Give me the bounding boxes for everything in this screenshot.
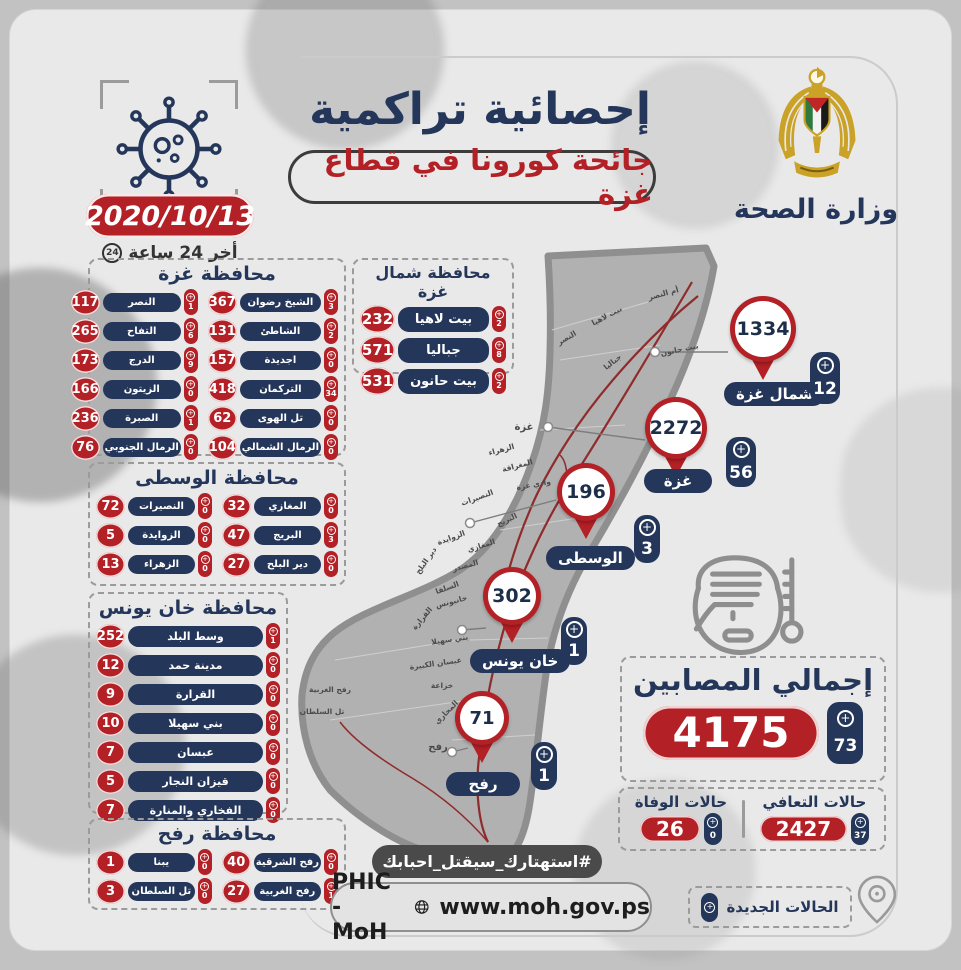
- deaths-block: حالات الوفاة 26 +0: [635, 793, 727, 845]
- area-name: بيت حانون: [398, 369, 489, 394]
- total-count: 27: [222, 879, 251, 904]
- stat-row: 27رفح الغربية+1: [222, 878, 338, 904]
- plus-icon: +: [200, 853, 209, 862]
- area-name: اجديدة: [240, 351, 321, 370]
- new-cases-badge: +3: [324, 522, 338, 548]
- region-label-khan-younis: خان يونس: [470, 649, 570, 673]
- pin-total-count: 2272: [650, 402, 702, 454]
- new-cases-badge: +0: [198, 493, 212, 519]
- map-place-label: الزهراء: [487, 442, 515, 458]
- total-count: 27: [222, 552, 251, 577]
- new-cases-count: 0: [270, 782, 276, 790]
- new-cases-badge: +0: [324, 493, 338, 519]
- stat-row: 27دير البلح+0: [222, 551, 338, 577]
- area-name: تل الهوى: [240, 409, 321, 428]
- stat-row: 232بيت لاهيا+2: [360, 305, 506, 333]
- stat-row: 47البريج+3: [222, 522, 338, 548]
- new-cases-badge-wusta: +3: [634, 515, 660, 563]
- new-cases-badge: +0: [266, 710, 280, 736]
- stat-row: 367الشيخ رضوان+3: [208, 289, 338, 315]
- area-name: تل السلطان: [128, 882, 195, 901]
- section-title: محافظة الوسطى: [96, 467, 338, 489]
- total-count: 10: [96, 711, 125, 736]
- new-cases-count: 0: [188, 448, 194, 456]
- area-name: الزيتون: [103, 380, 181, 399]
- pin-total-count: 1334: [735, 301, 791, 357]
- total-infected-box: إجمالي المصابين 4175 + 73: [620, 656, 886, 782]
- plus-icon: +: [733, 441, 750, 458]
- new-cases-count: 2: [496, 382, 502, 390]
- area-name: دير البلح: [254, 555, 321, 574]
- new-cases-badge: +0: [184, 434, 198, 460]
- new-cases-badge: +34: [324, 376, 338, 402]
- new-cases-badge: +0: [324, 347, 338, 373]
- new-cases-count: 0: [328, 419, 334, 427]
- total-count: 157: [208, 348, 237, 373]
- total-count: 3: [96, 879, 125, 904]
- total-count: 571: [360, 336, 395, 364]
- recovered-value: 2427: [760, 816, 848, 842]
- area-name: الرمال الشمالي: [240, 438, 321, 457]
- plus-icon: +: [186, 409, 195, 418]
- recovered-new-badge: +37: [851, 813, 869, 845]
- new-cases-badge: +0: [324, 434, 338, 460]
- plus-icon: +: [327, 438, 336, 447]
- area-name: رفح الشرقية: [254, 853, 321, 872]
- stat-row: 72النصيرات+0: [96, 493, 212, 519]
- new-cases-badge: +1: [184, 405, 198, 431]
- stat-row: 32المغازي+0: [222, 493, 338, 519]
- plus-icon: +: [269, 685, 278, 694]
- new-cases-count: 0: [328, 507, 334, 515]
- stat-row: 40رفح الشرقية+0: [222, 849, 338, 875]
- new-cases-count: 3: [328, 303, 334, 311]
- new-cases-count: 2: [496, 320, 502, 328]
- stat-row: 531بيت حانون+2: [360, 367, 506, 395]
- total-new-cases-count: 73: [834, 736, 858, 756]
- map-place-label: رفح الغربية: [309, 685, 351, 694]
- stats-grid: 40رفح الشرقية+01يبنا+027رفح الغربية+13تل…: [96, 849, 338, 904]
- new-cases-badge: +2: [324, 318, 338, 344]
- stat-row: 104الرمال الشمالي+0: [208, 434, 338, 460]
- section-wusta-governorate: محافظة الوسطى 32المغازي+072النصيرات+047ا…: [88, 462, 346, 586]
- section-north-gaza-governorate: محافظة شمال غزة 232بيت لاهيا+2571جباليا+…: [352, 258, 514, 374]
- map-pin-khan-younis: 302: [483, 567, 541, 643]
- pin-total-count: 71: [460, 696, 504, 740]
- new-cases-count: 56: [729, 463, 753, 483]
- plus-icon: +: [327, 555, 336, 564]
- stat-row: 12مدينة حمد+0: [96, 652, 280, 678]
- new-cases-count: 1: [270, 637, 276, 645]
- new-cases-count: 3: [641, 539, 653, 559]
- new-cases-count: 6: [188, 332, 194, 340]
- plus-icon: +: [269, 627, 278, 636]
- area-name: البريج: [254, 526, 321, 545]
- stat-row: 5قيزان النجار+0: [96, 768, 280, 794]
- map-place-label: تل السلطان: [300, 707, 345, 716]
- total-count: 5: [96, 523, 125, 548]
- stat-row: 1يبنا+0: [96, 849, 212, 875]
- plus-icon: +: [269, 801, 278, 810]
- total-count: 367: [208, 290, 237, 315]
- section-title: محافظة شمال غزة: [360, 263, 506, 301]
- stats-grid: 367الشيخ رضوان+3117النصر+1131الشاطئ+2265…: [96, 289, 338, 460]
- new-cases-badge-rafah: +1: [531, 742, 557, 790]
- total-count: 32: [222, 494, 251, 519]
- area-name: جباليا: [398, 338, 489, 363]
- report-date-badge: 2020/10/13: [86, 194, 254, 238]
- region-label-gaza: غزة: [644, 469, 712, 493]
- total-count: 1: [96, 850, 125, 875]
- new-cases-legend: الحالات الجديدة +: [688, 886, 852, 928]
- map-pin-north-gaza: 1334: [730, 296, 796, 380]
- new-cases-badge: +0: [198, 551, 212, 577]
- plus-icon: +: [536, 746, 553, 763]
- recovered-new-count: 37: [854, 831, 867, 841]
- total-count: 265: [71, 319, 100, 344]
- area-name: الشاطئ: [240, 322, 321, 341]
- new-cases-badge-khan-younis: +1: [561, 617, 587, 665]
- new-cases-badge: +3: [324, 289, 338, 315]
- deaths-new-badge: +0: [704, 813, 722, 845]
- total-count: 117: [71, 290, 100, 315]
- section-title: محافظة غزة: [96, 263, 338, 285]
- plus-icon: +: [200, 882, 209, 891]
- new-cases-badge: +2: [492, 368, 506, 394]
- new-cases-count: 0: [328, 361, 334, 369]
- area-name: النصر: [103, 293, 181, 312]
- plus-icon: +: [327, 293, 336, 302]
- total-count: 40: [222, 850, 251, 875]
- recovered-deaths-box: حالات الوفاة 26 +0 حالات التعافي 2427 +3…: [618, 787, 886, 851]
- plus-icon: +: [707, 817, 718, 828]
- stat-row: 236الصبرة+1: [71, 405, 198, 431]
- poster-subtitle: جائحة كورونا في قطاع غزة: [288, 150, 656, 204]
- plus-icon: +: [186, 293, 195, 302]
- plus-icon: +: [186, 351, 195, 360]
- total-new-cases-badge: + 73: [827, 702, 863, 764]
- new-cases-count: 1: [568, 641, 580, 661]
- area-name: الشيخ رضوان: [240, 293, 321, 312]
- total-count: 76: [71, 435, 100, 460]
- stat-row: 173الدرج+9: [71, 347, 198, 373]
- new-cases-badge: +0: [324, 405, 338, 431]
- plus-icon: +: [327, 497, 336, 506]
- new-cases-badge: +0: [184, 376, 198, 402]
- new-cases-badge: +0: [266, 768, 280, 794]
- area-name: بيت لاهيا: [398, 307, 489, 332]
- awareness-hashtag: #استهتارك_سيقتل_احبابك: [372, 845, 602, 878]
- deaths-new-count: 0: [710, 831, 716, 841]
- section-khan-younis-governorate: محافظة خان يونس 252وسط البلد+112مدينة حم…: [88, 592, 288, 814]
- area-name: الدرج: [103, 351, 181, 370]
- fever-check-icon: [672, 543, 804, 661]
- new-cases-count: 1: [538, 766, 550, 786]
- recovered-label: حالات التعافي: [762, 793, 866, 811]
- stat-row: 265التفاح+6: [71, 318, 198, 344]
- plus-icon: +: [201, 555, 210, 564]
- new-cases-badge: +0: [198, 522, 212, 548]
- stat-row: 9القرارة+0: [96, 681, 280, 707]
- new-cases-count: 0: [202, 565, 208, 573]
- website-bar: PHIC - MoH www.moh.gov.ps: [330, 882, 652, 932]
- stat-row: 7عبسان+0: [96, 739, 280, 765]
- total-count: 236: [71, 406, 100, 431]
- new-cases-count: 8: [496, 351, 502, 359]
- new-cases-badge: +0: [266, 739, 280, 765]
- map-place-label: الزوايدة: [436, 528, 466, 546]
- plus-icon: +: [327, 853, 336, 862]
- website-url: www.moh.gov.ps: [439, 895, 650, 920]
- plus-icon: +: [269, 772, 278, 781]
- total-count: 62: [208, 406, 237, 431]
- plus-icon: +: [495, 310, 504, 319]
- globe-icon: [414, 892, 430, 922]
- area-name: القرارة: [128, 684, 263, 705]
- area-name: رفح الغربية: [254, 882, 321, 901]
- plus-icon: +: [837, 710, 854, 727]
- new-cases-badge: +9: [184, 347, 198, 373]
- area-name: الرمال الجنوبي: [103, 438, 181, 457]
- plus-icon: +: [186, 322, 195, 331]
- stat-row: 13الزهراء+0: [96, 551, 212, 577]
- stats-grid: 32المغازي+072النصيرات+047البريج+35الزواي…: [96, 493, 338, 577]
- map-place-label: رفح: [428, 742, 448, 753]
- new-cases-count: 2: [328, 332, 334, 340]
- total-infected-value: 4175: [643, 706, 820, 760]
- plus-icon: +: [639, 519, 656, 536]
- stat-row: 252وسط البلد+1: [96, 623, 280, 649]
- new-cases-badge-north-gaza: +12: [810, 352, 840, 404]
- new-cases-count: 0: [202, 536, 208, 544]
- region-label-wusta: الوسطى: [546, 546, 635, 570]
- total-count: 9: [96, 682, 125, 707]
- divider: [742, 800, 745, 838]
- new-cases-count: 0: [328, 565, 334, 573]
- stat-row: 117النصر+1: [71, 289, 198, 315]
- new-cases-count: 0: [202, 507, 208, 515]
- new-cases-count: 9: [188, 361, 194, 369]
- area-name: النصيرات: [128, 497, 195, 516]
- stats-grid: 232بيت لاهيا+2571جباليا+8531بيت حانون+2: [360, 305, 506, 395]
- deaths-label: حالات الوفاة: [635, 793, 727, 811]
- plus-icon: +: [269, 656, 278, 665]
- section-title: محافظة رفح: [96, 823, 338, 845]
- new-cases-count: 0: [270, 724, 276, 732]
- plus-icon: +: [186, 438, 195, 447]
- map-place-label: دير البلح: [413, 545, 438, 576]
- plus-icon: +: [269, 743, 278, 752]
- new-cases-badge: +1: [184, 289, 198, 315]
- new-cases-count: 0: [270, 666, 276, 674]
- new-cases-count: 1: [188, 303, 194, 311]
- stat-row: 131الشاطئ+2: [208, 318, 338, 344]
- area-name: مدينة حمد: [128, 655, 263, 676]
- new-cases-count: 0: [270, 753, 276, 761]
- total-count: 72: [96, 494, 125, 519]
- pin-total-count: 196: [562, 468, 610, 516]
- total-count: 47: [222, 523, 251, 548]
- new-cases-count: 1: [188, 419, 194, 427]
- total-count: 531: [360, 367, 395, 395]
- plus-icon: +: [704, 902, 715, 913]
- recovered-block: حالات التعافي 2427 +37: [760, 793, 870, 845]
- section-gaza-governorate: محافظة غزة 367الشيخ رضوان+3117النصر+1131…: [88, 258, 346, 456]
- stat-row: 10بني سهيلا+0: [96, 710, 280, 736]
- plus-icon: +: [495, 372, 504, 381]
- pin-total-count: 302: [488, 572, 536, 620]
- stat-row: 76الرمال الجنوبي+0: [71, 434, 198, 460]
- area-name: يبنا: [128, 853, 195, 872]
- total-count: 173: [71, 348, 100, 373]
- location-pin-icon: [856, 874, 898, 926]
- plus-icon: +: [855, 817, 866, 828]
- stats-grid: 252وسط البلد+112مدينة حمد+09القرارة+010ب…: [96, 623, 280, 823]
- total-count: 13: [96, 552, 125, 577]
- stat-row: 571جباليا+8: [360, 336, 506, 364]
- area-name: عبسان: [128, 742, 263, 763]
- new-cases-badge: +0: [266, 652, 280, 678]
- poster-title: إحصائية تراكمية: [290, 84, 670, 135]
- plus-icon: +: [327, 322, 336, 331]
- new-cases-badge: +2: [492, 306, 506, 332]
- plus-icon: +: [327, 526, 336, 535]
- stat-row: 157اجديدة+0: [208, 347, 338, 373]
- area-name: التركمان: [240, 380, 321, 399]
- region-label-rafah: رفح: [446, 772, 520, 796]
- new-cases-count: 0: [328, 448, 334, 456]
- plus-icon: +: [327, 409, 336, 418]
- new-cases-badge: +0: [198, 849, 212, 875]
- stat-row: 418التركمان+34: [208, 376, 338, 402]
- legend-label: الحالات الجديدة: [726, 898, 838, 916]
- area-name: المغازي: [254, 497, 321, 516]
- total-count: 7: [96, 740, 125, 765]
- map-pin-rafah: 71: [455, 691, 509, 763]
- total-count: 12: [96, 653, 125, 678]
- new-cases-badge-gaza: +56: [726, 437, 756, 487]
- new-cases-badge: +0: [198, 878, 212, 904]
- plus-icon: +: [327, 351, 336, 360]
- total-count: 5: [96, 769, 125, 794]
- plus-icon: +: [566, 621, 583, 638]
- total-count: 232: [360, 305, 395, 333]
- deaths-value: 26: [640, 816, 700, 842]
- section-rafah-governorate: محافظة رفح 40رفح الشرقية+01يبنا+027رفح ا…: [88, 818, 346, 910]
- new-cases-count: 0: [188, 390, 194, 398]
- organization-label: PHIC - MoH: [332, 870, 404, 945]
- new-cases-count: 0: [202, 892, 208, 900]
- map-place-label: خزاعة: [431, 681, 453, 690]
- plus-icon: +: [269, 714, 278, 723]
- plus-icon: +: [201, 526, 210, 535]
- area-name: قيزان النجار: [128, 771, 263, 792]
- map-place-label: النصيرات: [460, 488, 495, 508]
- total-count: 418: [208, 377, 237, 402]
- stat-row: 166الزيتون+0: [71, 376, 198, 402]
- new-cases-count: 0: [270, 695, 276, 703]
- new-cases-badge-icon: +: [701, 893, 718, 922]
- new-cases-count: 0: [202, 863, 208, 871]
- new-cases-badge: +0: [266, 681, 280, 707]
- area-name: بني سهيلا: [128, 713, 263, 734]
- plus-icon: +: [186, 380, 195, 389]
- map-pin-wusta: 196: [557, 463, 615, 539]
- stat-row: 3تل السلطان+0: [96, 878, 212, 904]
- ministry-of-health-label: وزارة الصحة: [728, 194, 904, 225]
- new-cases-badge: +6: [184, 318, 198, 344]
- map-place-label: غزة: [515, 422, 534, 433]
- new-cases-badge: +1: [266, 623, 280, 649]
- new-cases-count: 12: [813, 379, 837, 399]
- area-name: وسط البلد: [128, 626, 263, 647]
- area-name: الزهراء: [128, 555, 195, 574]
- area-name: الزوايدة: [128, 526, 195, 545]
- stat-row: 62تل الهوى+0: [208, 405, 338, 431]
- total-infected-label: إجمالي المصابين: [633, 663, 873, 697]
- coronavirus-icon: [112, 92, 226, 206]
- area-name: الصبرة: [103, 409, 181, 428]
- total-count: 252: [96, 624, 125, 649]
- total-count: 131: [208, 319, 237, 344]
- new-cases-badge: +8: [492, 337, 506, 363]
- plus-icon: +: [817, 357, 834, 374]
- section-title: محافظة خان يونس: [96, 597, 280, 619]
- new-cases-count: 34: [325, 390, 336, 398]
- new-cases-badge: +0: [324, 551, 338, 577]
- palestine-eagle-logo: [765, 62, 869, 190]
- plus-icon: +: [495, 341, 504, 350]
- plus-icon: +: [201, 497, 210, 506]
- area-name: التفاح: [103, 322, 181, 341]
- plus-icon: +: [327, 380, 336, 389]
- total-count: 166: [71, 377, 100, 402]
- stat-row: 5الزوايدة+0: [96, 522, 212, 548]
- total-count: 104: [208, 435, 237, 460]
- new-cases-count: 3: [328, 536, 334, 544]
- map-pin-gaza: 2272: [645, 397, 707, 477]
